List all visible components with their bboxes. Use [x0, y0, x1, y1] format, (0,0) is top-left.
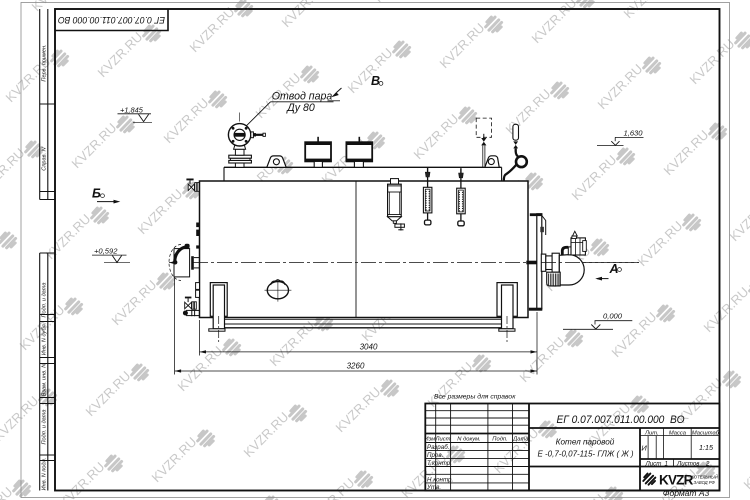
svg-text:Н.контр.: Н.контр. — [427, 476, 453, 483]
svg-text:KVZR.RU: KVZR.RU — [57, 459, 108, 500]
svg-text:KVZR.RU: KVZR.RU — [411, 111, 462, 162]
svg-text:KVZR.RU: KVZR.RU — [307, 475, 358, 500]
svg-text:Подп.: Подп. — [492, 437, 507, 443]
svg-text:Е -0,7-0,07-115- ГЛЖ ( Ж ): Е -0,7-0,07-115- ГЛЖ ( Ж ) — [537, 450, 633, 459]
svg-text:KVZR.RU: KVZR.RU — [529, 0, 580, 46]
svg-text:1: 1 — [665, 460, 668, 467]
svg-text:Все размеры для справок: Все размеры для справок — [434, 392, 516, 400]
svg-text:3260: 3260 — [347, 361, 365, 370]
svg-text:KVZR.RU: KVZR.RU — [187, 4, 238, 55]
svg-text:KVZR.RU: KVZR.RU — [267, 318, 318, 369]
svg-text:KVZR.RU: KVZR.RU — [161, 95, 212, 146]
svg-text:KVZR.RU: KVZR.RU — [95, 29, 146, 80]
svg-text:Подп. и дата: Подп. и дата — [42, 282, 48, 317]
svg-text:И: И — [641, 444, 647, 453]
svg-text:Лист: Лист — [435, 437, 451, 443]
svg-text:Пров.: Пров. — [427, 452, 443, 459]
svg-text:KVZR.RU: KVZR.RU — [241, 409, 292, 460]
svg-text:Масса: Масса — [669, 430, 687, 436]
svg-text:KVZR.RU: KVZR.RU — [741, 441, 750, 492]
svg-text:ЗАВОД РФ: ЗАВОД РФ — [694, 480, 716, 485]
svg-text:Взам. инв. N: Взам. инв. N — [42, 363, 48, 397]
svg-text:KVZR.RU: KVZR.RU — [83, 368, 134, 419]
svg-text:N докум.: N докум. — [457, 437, 480, 443]
svg-text:KVZR.RU: KVZR.RU — [333, 384, 384, 435]
svg-text:KVZR.RU: KVZR.RU — [517, 334, 568, 385]
svg-text:KVZR.RU: KVZR.RU — [109, 277, 160, 328]
svg-text:KVZR.RU: KVZR.RU — [135, 186, 186, 237]
svg-text:3040: 3040 — [360, 342, 378, 351]
svg-text:KVZR.RU: KVZR.RU — [503, 86, 554, 137]
svg-text:KVZR.RU: KVZR.RU — [175, 343, 226, 394]
svg-text:В: В — [371, 74, 380, 88]
svg-text:+0,592: +0,592 — [94, 247, 118, 256]
svg-text:KVZR.RU: KVZR.RU — [69, 120, 120, 171]
svg-text:KVZR.RU: KVZR.RU — [569, 152, 620, 203]
svg-text:KVZR.RU: KVZR.RU — [621, 0, 672, 21]
svg-text:KVZR.RU: KVZR.RU — [279, 0, 330, 30]
svg-text:KVZR.RU: KVZR.RU — [425, 359, 476, 410]
svg-text:KVZR.RU: KVZR.RU — [0, 145, 27, 196]
svg-text:Инв. N подл.: Инв. N подл. — [42, 458, 48, 491]
svg-text:KVZR.RU: KVZR.RU — [661, 127, 712, 178]
svg-text:Листов: Листов — [676, 460, 700, 467]
svg-text:Лит.: Лит. — [644, 430, 659, 436]
svg-text:ЕГ 0.07.007.011.00.000 ВО: ЕГ 0.07.007.011.00.000 ВО — [57, 15, 165, 26]
svg-text:KVZR.RU: KVZR.RU — [43, 211, 94, 262]
svg-text:А: А — [609, 262, 619, 276]
svg-text:Инв. N дубл.: Инв. N дубл. — [42, 323, 48, 355]
svg-text:Перв. примен.: Перв. примен. — [42, 44, 48, 81]
svg-text:Подп. и дата: Подп. и дата — [42, 409, 48, 444]
svg-text:KVZR.RU: KVZR.RU — [437, 20, 488, 71]
svg-text:Формат А3: Формат А3 — [663, 488, 710, 498]
svg-text:ЕГ 0.07.007.011.00.000 ВО: ЕГ 0.07.007.011.00.000 ВО — [557, 414, 685, 426]
svg-text:Разраб.: Разраб. — [427, 444, 449, 451]
svg-text:2: 2 — [705, 460, 710, 467]
svg-text:Лист: Лист — [645, 460, 662, 467]
svg-text:1:15: 1:15 — [699, 443, 714, 452]
svg-text:Б: Б — [92, 187, 101, 201]
svg-text:KVZR.RU: KVZR.RU — [345, 45, 396, 96]
svg-text:Т.контр.: Т.контр. — [427, 460, 452, 467]
svg-text:KVZR.RU: KVZR.RU — [595, 61, 646, 112]
svg-text:КОТЕЛЬНЫЙ: КОТЕЛЬНЫЙ — [692, 475, 718, 480]
svg-text:Дата: Дата — [512, 437, 529, 443]
svg-text:Утв.: Утв. — [426, 484, 441, 491]
svg-text:0,000: 0,000 — [603, 312, 623, 321]
svg-text:Справ. N: Справ. N — [42, 146, 48, 170]
svg-text:KVZR: KVZR — [659, 473, 694, 488]
svg-text:KVZR.RU: KVZR.RU — [149, 434, 200, 485]
svg-text:Масштаб: Масштаб — [692, 430, 720, 436]
svg-text:KVZR.RU: KVZR.RU — [557, 491, 608, 500]
svg-text:KVZR.RU: KVZR.RU — [635, 218, 686, 269]
svg-text:Отвод пара: Отвод пара — [272, 91, 333, 103]
svg-text:+1,845: +1,845 — [120, 106, 144, 115]
svg-text:1,630: 1,630 — [624, 129, 644, 138]
svg-text:KVZR.RU: KVZR.RU — [701, 284, 750, 335]
svg-text:Котел паровой: Котел паровой — [556, 438, 615, 447]
svg-text:Ду 80: Ду 80 — [286, 102, 315, 114]
svg-text:KVZR.RU: KVZR.RU — [727, 193, 750, 244]
